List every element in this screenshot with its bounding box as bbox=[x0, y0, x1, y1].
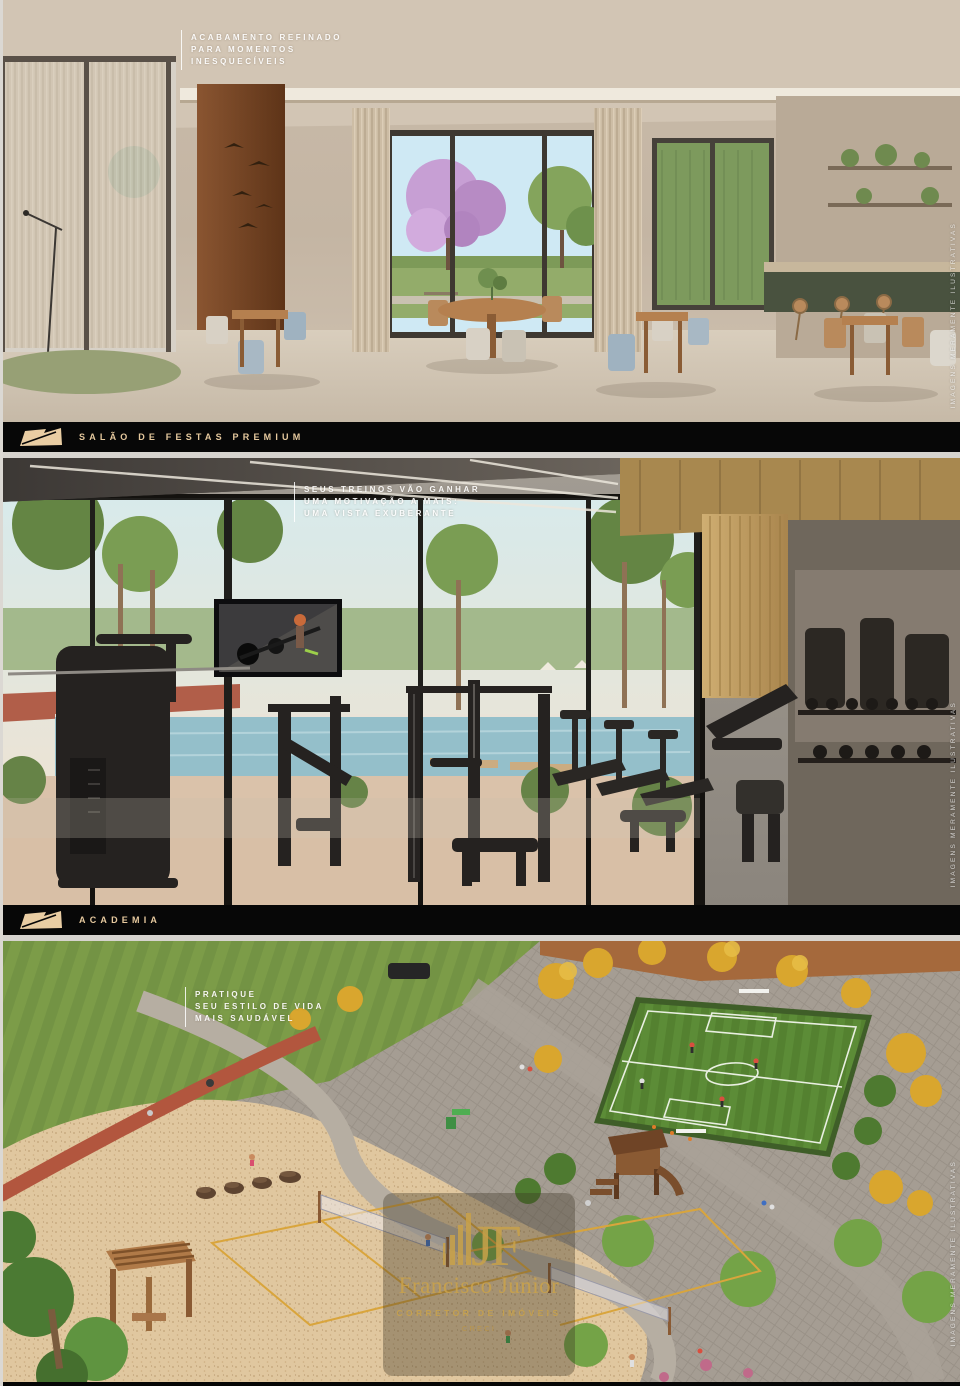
panel-label: SALÃO DE FESTAS PREMIUM bbox=[79, 432, 304, 442]
caption-line: SEU ESTILO DE VIDA bbox=[195, 1001, 324, 1013]
realtor-watermark: JF Francisco Júnior CORRETOR DE IMÓVEIS … bbox=[383, 1193, 575, 1376]
label-bar-academia: ACADEMIA bbox=[0, 905, 960, 935]
bottom-edge bbox=[0, 1382, 960, 1386]
render-academia bbox=[0, 458, 960, 905]
realtor-role: CORRETOR DE IMÓVEIS bbox=[396, 1308, 561, 1318]
brand-mark-icon bbox=[18, 909, 64, 931]
panel-gap bbox=[0, 452, 960, 458]
caption-salao: ACABAMENTO REFINADO PARA MOMENTOS INESQU… bbox=[181, 30, 342, 70]
caption-line: PRATIQUE bbox=[195, 989, 324, 1001]
caption-area-externa: PRATIQUE SEU ESTILO DE VIDA MAIS SAUDÁVE… bbox=[185, 987, 324, 1027]
caption-line: ACABAMENTO REFINADO bbox=[191, 32, 342, 44]
panel-salao-festas: ACABAMENTO REFINADO PARA MOMENTOS INESQU… bbox=[0, 0, 960, 422]
caption-line: UMA VISTA EXUBERANTE bbox=[304, 508, 480, 520]
realtor-logo-icon: JF bbox=[431, 1201, 527, 1275]
disclaimer-vertical: IMAGENS MERAMENTE ILUSTRATIVAS bbox=[950, 1160, 957, 1346]
label-bar-salao: SALÃO DE FESTAS PREMIUM bbox=[0, 422, 960, 452]
panel-gap bbox=[0, 935, 960, 941]
caption-line: MAIS SAUDÁVEL bbox=[195, 1013, 324, 1025]
caption-academia: SEUS TREINOS VÃO GANHAR UMA MOTIVAÇÃO A … bbox=[294, 482, 480, 522]
disclaimer-vertical: IMAGENS MERAMENTE ILUSTRATIVAS bbox=[950, 701, 957, 887]
brand-mark-icon bbox=[18, 426, 64, 448]
disclaimer-vertical: IMAGENS MERAMENTE ILUSTRATIVAS bbox=[950, 222, 957, 408]
panel-label: ACADEMIA bbox=[79, 915, 161, 925]
panel-area-externa: PRATIQUE SEU ESTILO DE VIDA MAIS SAUDÁVE… bbox=[0, 941, 960, 1382]
brochure-page: ACABAMENTO REFINADO PARA MOMENTOS INESQU… bbox=[0, 0, 960, 1386]
realtor-creci: CRECI bbox=[462, 1324, 496, 1333]
svg-text:JF: JF bbox=[471, 1213, 521, 1275]
left-edge bbox=[0, 0, 3, 1386]
caption-line: UMA MOTIVAÇÃO A MAIS: bbox=[304, 496, 480, 508]
caption-line: SEUS TREINOS VÃO GANHAR bbox=[304, 484, 480, 496]
caption-line: PARA MOMENTOS bbox=[191, 44, 342, 56]
render-salao-festas bbox=[0, 0, 960, 422]
panel-academia: SEUS TREINOS VÃO GANHAR UMA MOTIVAÇÃO A … bbox=[0, 458, 960, 905]
realtor-name: Francisco Júnior bbox=[399, 1273, 560, 1299]
caption-line: INESQUECÍVEIS bbox=[191, 56, 342, 68]
